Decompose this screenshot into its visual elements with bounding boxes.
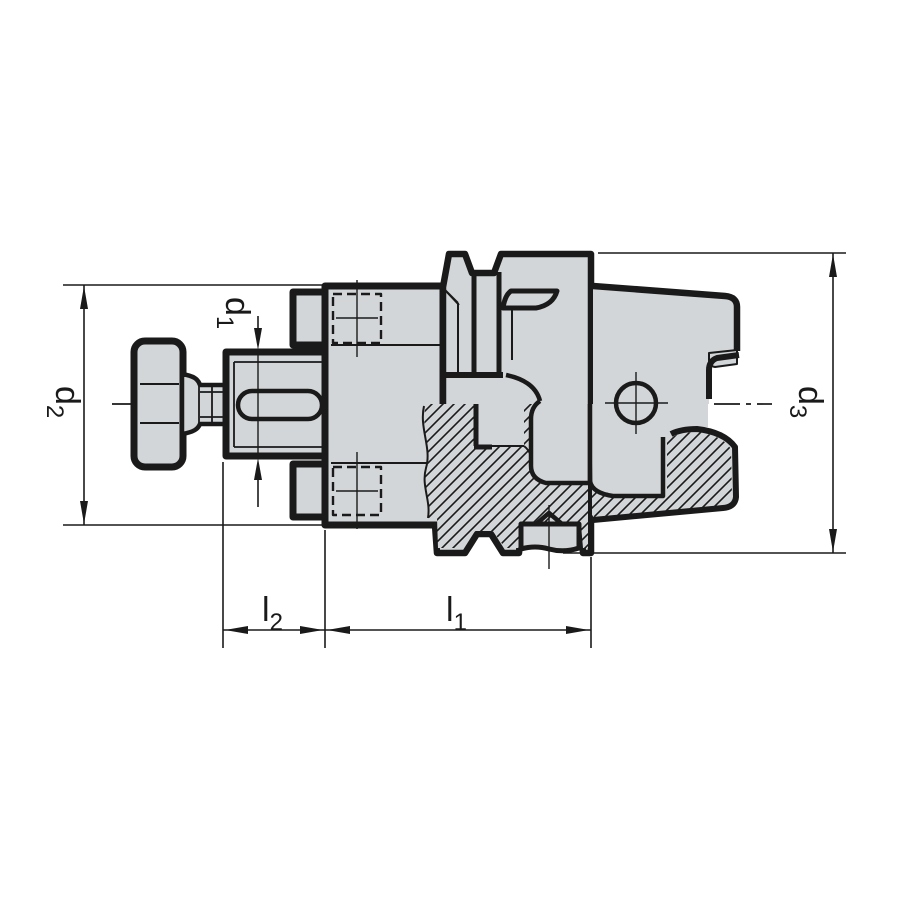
d2-arrow-down [80, 501, 88, 524]
tool-holder-section-drawing: d2 d3 d1 l2 l1 [0, 0, 900, 900]
screw-head [134, 341, 183, 467]
gripper-groove-profile [503, 291, 557, 308]
d1-label: d1 [211, 297, 256, 329]
l1-arrow-right [566, 626, 589, 634]
drive-lug-top [293, 292, 326, 345]
technical-drawing-page: d2 d3 d1 l2 l1 [0, 0, 900, 900]
drive-slot [238, 391, 322, 419]
l2-arrow-right [300, 626, 323, 634]
screw-neck [182, 374, 226, 434]
l2-arrow-left [225, 626, 248, 634]
drive-lug-bottom [293, 464, 326, 517]
key-block [521, 524, 579, 551]
d3-label: d3 [784, 386, 829, 418]
l1-arrow-left [327, 626, 350, 634]
d2-arrow-up [80, 286, 88, 309]
d1-arrow-up [254, 458, 262, 480]
clamping-screw [134, 341, 226, 467]
d3-arrow-up [829, 254, 837, 277]
d3-arrow-down [829, 529, 837, 552]
d1-arrow-down [254, 328, 262, 350]
taper-shank [593, 286, 739, 404]
pilot-arbor [226, 350, 327, 458]
d2-label: d2 [41, 386, 86, 418]
